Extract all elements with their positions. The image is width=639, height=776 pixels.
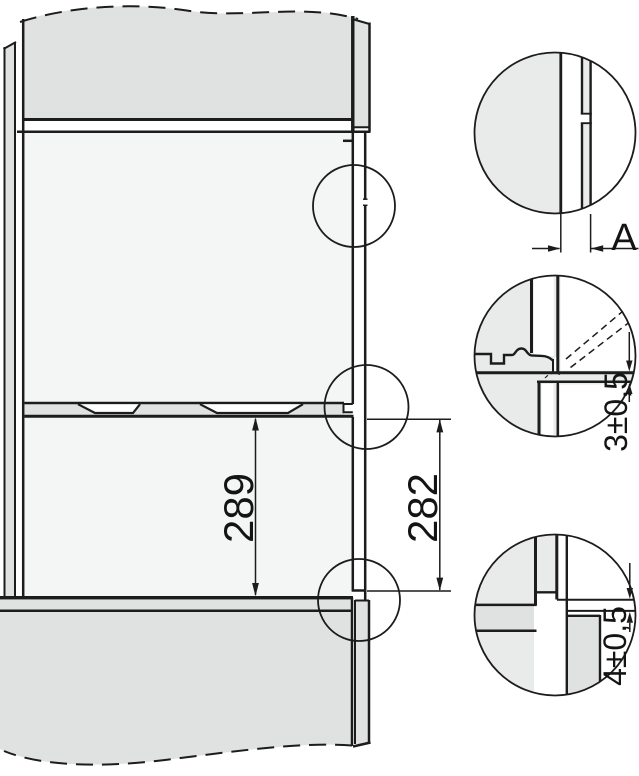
niche-height-label: 289 [215,473,262,543]
top-compartment [17,6,371,132]
base-cabinet [0,598,371,765]
niche-interior [25,133,353,597]
bottom-gap-label: 4±0,5 [597,606,633,686]
vent-cutout-2 [200,404,303,413]
front-height-label: 282 [399,473,446,543]
top-gap-label: 3±0,5 [598,372,634,452]
detail-view-bottom-gap: 4±0,5 [473,534,639,698]
detail-view-top-gap: 3±0,5 [473,272,639,452]
side-gap-label: A [611,217,637,259]
divider-shelf [25,403,354,416]
installation-diagram: 289 282 A [0,0,639,776]
left-side-wall [4,19,24,597]
top-right-front-strip [353,16,370,132]
diagram-canvas: 289 282 A [0,0,639,776]
lower-front-panel [356,601,369,745]
detail-view-side-gap: A [473,51,639,259]
